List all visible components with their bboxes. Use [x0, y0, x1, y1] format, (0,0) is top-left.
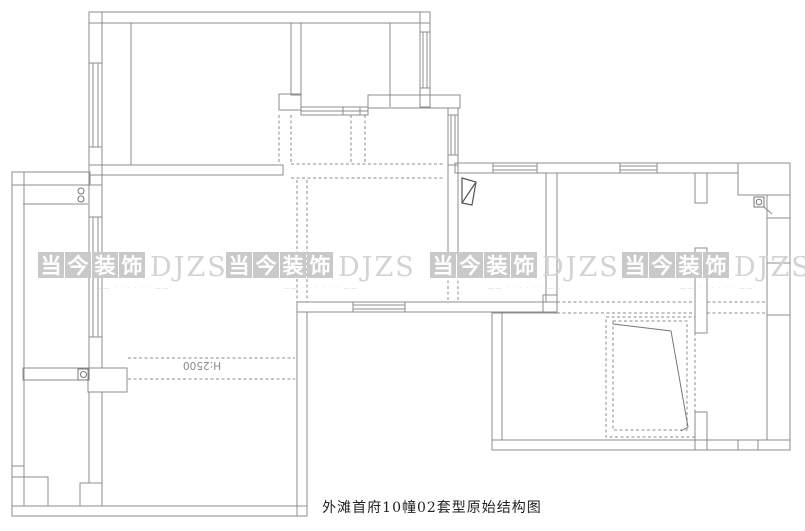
brand-char: 饰	[122, 254, 143, 278]
wall	[89, 392, 102, 483]
brand-char: 今	[68, 254, 89, 278]
wall	[291, 23, 301, 95]
wall	[297, 302, 557, 312]
window	[493, 163, 537, 173]
dashed-rect	[606, 317, 695, 437]
brand-latin: DJZS	[338, 252, 416, 283]
watermark-tagline: —— · · · · · · ——	[96, 285, 170, 292]
brand-latin: DJZS	[542, 252, 620, 283]
watermark: 当 今 装 饰 DJZS —— · · · · · · ——	[622, 252, 805, 292]
wall	[89, 165, 283, 175]
brand-char: 当	[229, 254, 250, 278]
watermark-tagline: —— · · · · · · ——	[680, 285, 754, 292]
caption: 外滩首府10幢02套型原始结构图	[322, 499, 542, 516]
dashed-rect	[613, 321, 687, 430]
wall-notch	[12, 466, 24, 477]
windows	[89, 32, 657, 337]
brand-latin: DJZS	[150, 252, 228, 283]
watermark-tagline: —— · · · · · · ——	[284, 285, 358, 292]
window	[448, 115, 458, 155]
brand-char: 装	[95, 254, 116, 278]
wall	[420, 95, 460, 108]
wall	[695, 173, 707, 203]
sloped-structure-outline	[613, 324, 688, 431]
wall	[368, 95, 420, 108]
window	[420, 32, 430, 88]
watermarks: 当 今 装 饰 DJZS —— · · · · · · —— 当 今 装 饰 D…	[38, 252, 805, 292]
window	[353, 302, 405, 312]
wall	[297, 312, 307, 516]
wall	[12, 172, 24, 506]
watermark: 当 今 装 饰 DJZS —— · · · · · · ——	[38, 252, 228, 292]
watermark-tagline: —— · · · · · · ——	[488, 285, 562, 292]
window-sill-band	[301, 107, 368, 115]
brand-char: 当	[41, 254, 62, 278]
brand-char: 当	[433, 254, 454, 278]
wall-chamfer	[764, 207, 772, 214]
window	[620, 163, 657, 173]
brand-char: 饰	[310, 254, 331, 278]
brand-char: 当	[625, 254, 646, 278]
brand-char: 饰	[514, 254, 535, 278]
wall	[492, 440, 790, 450]
wall	[767, 195, 790, 440]
wall-pier	[543, 295, 557, 313]
wall-pier	[279, 94, 301, 110]
floor-plan-page: H:2500 当 今 装 饰	[0, 0, 805, 531]
wall	[695, 412, 707, 450]
brand-char: 饰	[706, 254, 727, 278]
brand-char: 今	[652, 254, 673, 278]
wall	[89, 337, 102, 368]
wall-drain-icon	[754, 197, 764, 207]
watermark: 当 今 装 饰 DJZS —— · · · · · · ——	[226, 252, 416, 292]
wall	[89, 12, 430, 23]
floor-plan-svg: H:2500 当 今 装 饰	[0, 0, 805, 531]
brand-char: 今	[460, 254, 481, 278]
beam-height-label: H:2500	[128, 358, 295, 379]
beam-height-text: H:2500	[183, 359, 221, 371]
brand-char: 今	[256, 254, 277, 278]
stove-burners-icon	[78, 188, 84, 202]
wall	[89, 185, 102, 217]
brand-char: 装	[679, 254, 700, 278]
window	[89, 63, 102, 147]
wall	[448, 165, 458, 253]
wall-block	[738, 163, 790, 195]
wall	[12, 506, 307, 516]
symbols	[78, 178, 764, 431]
wall-pier	[88, 368, 127, 392]
brand-char: 装	[487, 254, 508, 278]
wall-pier	[80, 483, 102, 506]
brand-char: 装	[283, 254, 304, 278]
flue-icon	[462, 178, 476, 205]
wall-closet	[24, 477, 48, 506]
brand-latin: DJZS	[734, 252, 805, 283]
wall	[492, 313, 502, 440]
floor-drain-icon	[78, 369, 89, 380]
